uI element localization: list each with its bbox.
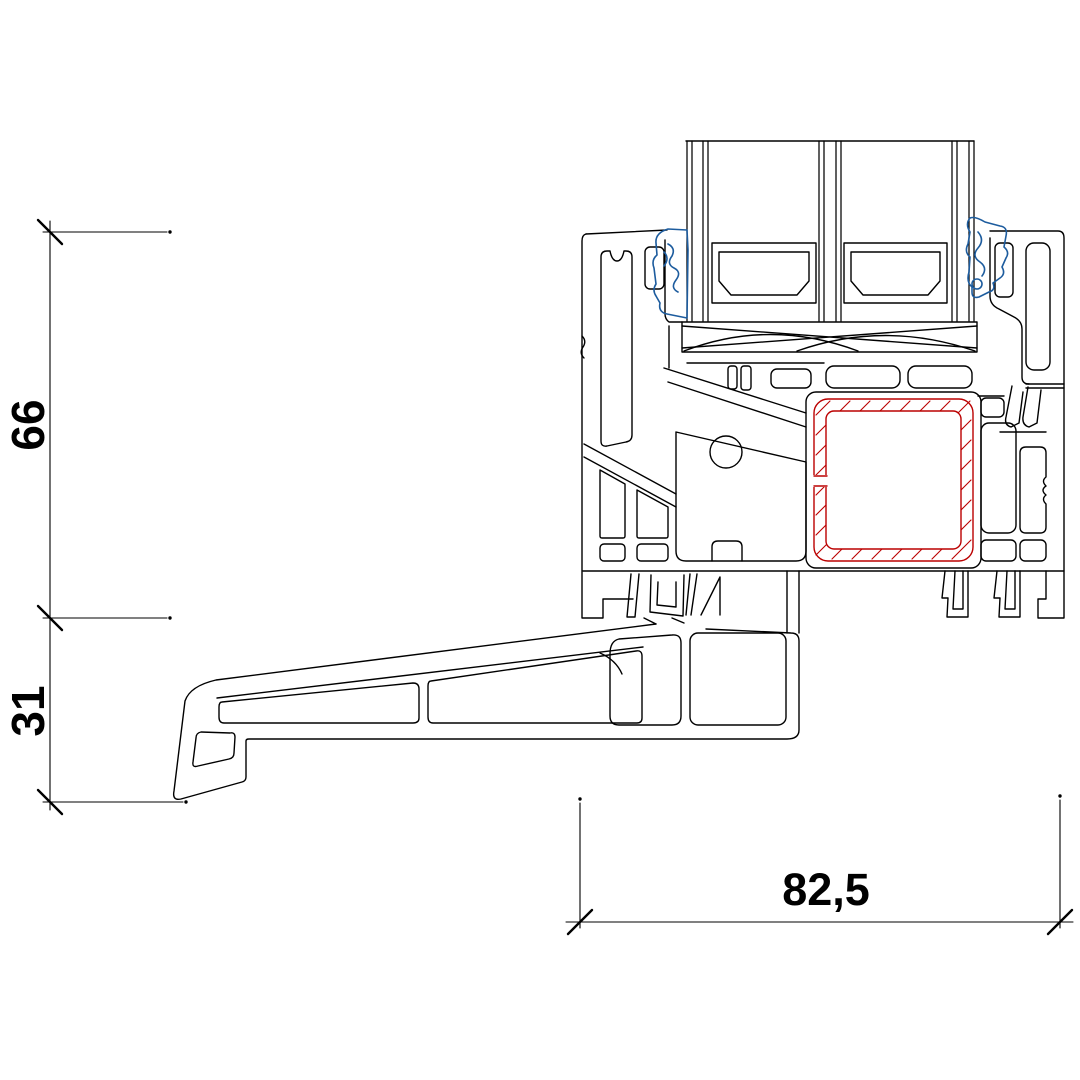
screw-boss bbox=[712, 541, 742, 561]
extension-dot bbox=[1058, 794, 1061, 797]
dimension-31: 31 bbox=[2, 685, 188, 814]
window-profile-section-drawing: 66 31 82,5 bbox=[0, 0, 1080, 1080]
frame-chamber-central bbox=[676, 432, 806, 561]
drainage-slope bbox=[664, 368, 806, 427]
screw-port bbox=[710, 436, 742, 468]
extension-dot bbox=[184, 800, 187, 803]
gasket-left bbox=[653, 229, 688, 318]
frame-feet bbox=[787, 571, 1020, 633]
gasket-right bbox=[966, 218, 1007, 298]
rebate-slot bbox=[771, 369, 811, 388]
sill-outline bbox=[174, 624, 799, 799]
glazing-unit bbox=[682, 141, 977, 352]
sill-inner-top-line bbox=[217, 647, 643, 698]
spacer-bar bbox=[712, 243, 816, 303]
steel-tube-inner bbox=[826, 411, 961, 549]
steel-slot-mask bbox=[811, 475, 829, 487]
window-sill bbox=[174, 624, 799, 799]
dimension-label-82-5: 82,5 bbox=[782, 864, 870, 915]
setting-block bbox=[682, 322, 977, 352]
extension-dot bbox=[168, 616, 171, 619]
sill-nose-chamber bbox=[193, 732, 235, 767]
bead-clip bbox=[978, 386, 1046, 432]
sill-interlock bbox=[627, 574, 720, 624]
frame-chamber bbox=[826, 366, 900, 388]
frame-chamber bbox=[908, 366, 972, 388]
rebate-slot bbox=[728, 366, 737, 389]
steel-reinforcement bbox=[811, 399, 973, 561]
glazing-bead bbox=[990, 238, 1064, 388]
extension-dot bbox=[578, 797, 581, 800]
dimension-label-31: 31 bbox=[2, 685, 54, 736]
frame-right-wall bbox=[990, 231, 1064, 618]
sill-bracket-chamber bbox=[690, 633, 786, 725]
spacer-bar bbox=[844, 243, 947, 303]
frame-chambers-left bbox=[584, 247, 676, 561]
frame-top-edge-left bbox=[586, 230, 667, 234]
sill-bracket-chamber bbox=[610, 635, 681, 725]
frame-chambers-right bbox=[981, 398, 1046, 561]
drawing-canvas: 66 31 82,5 bbox=[0, 0, 1080, 1080]
dimension-82-5: 82,5 bbox=[566, 794, 1073, 934]
dimension-label-66: 66 bbox=[2, 399, 54, 450]
drawing-root: 66 31 82,5 bbox=[2, 141, 1073, 934]
sill-chamber bbox=[219, 683, 419, 723]
dimensions: 66 31 82,5 bbox=[2, 220, 1073, 934]
rebate-slot bbox=[741, 366, 751, 390]
extension-dot bbox=[168, 230, 171, 233]
